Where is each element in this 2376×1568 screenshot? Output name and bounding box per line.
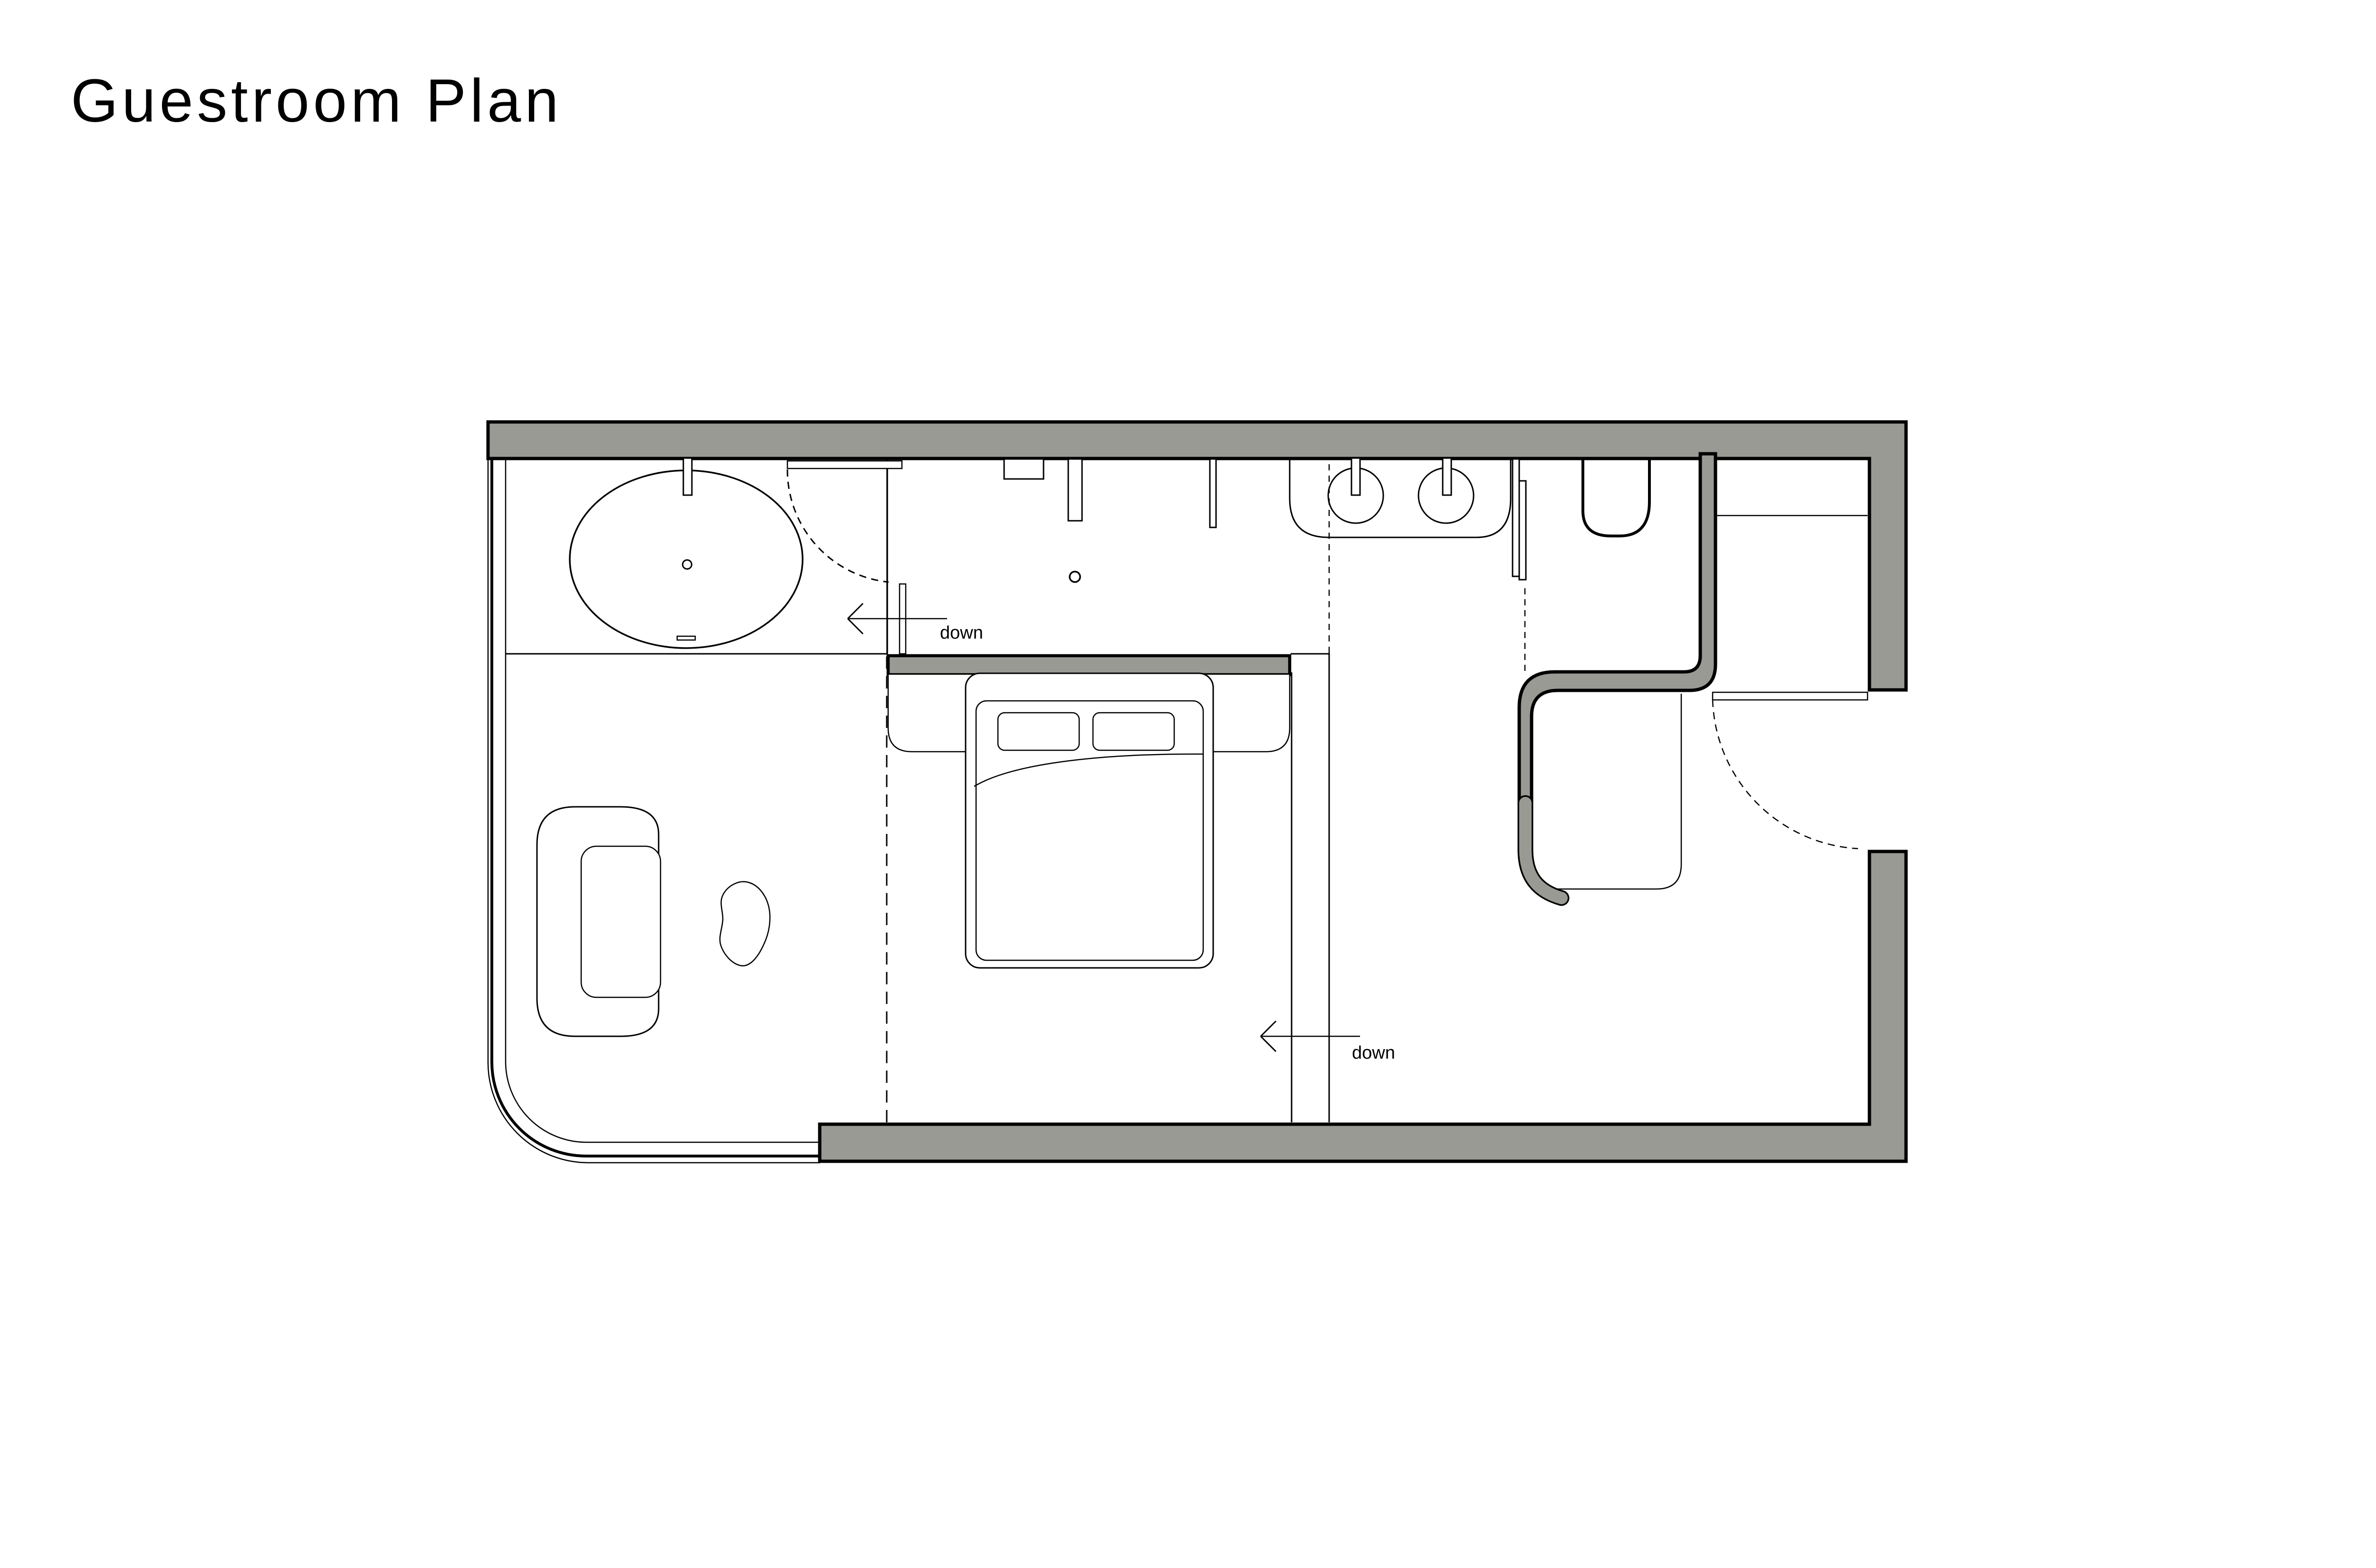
- svg-text:down: down: [940, 623, 983, 643]
- svg-text:down: down: [1352, 1043, 1395, 1063]
- svg-text:Guestroom Plan: Guestroom Plan: [71, 67, 562, 135]
